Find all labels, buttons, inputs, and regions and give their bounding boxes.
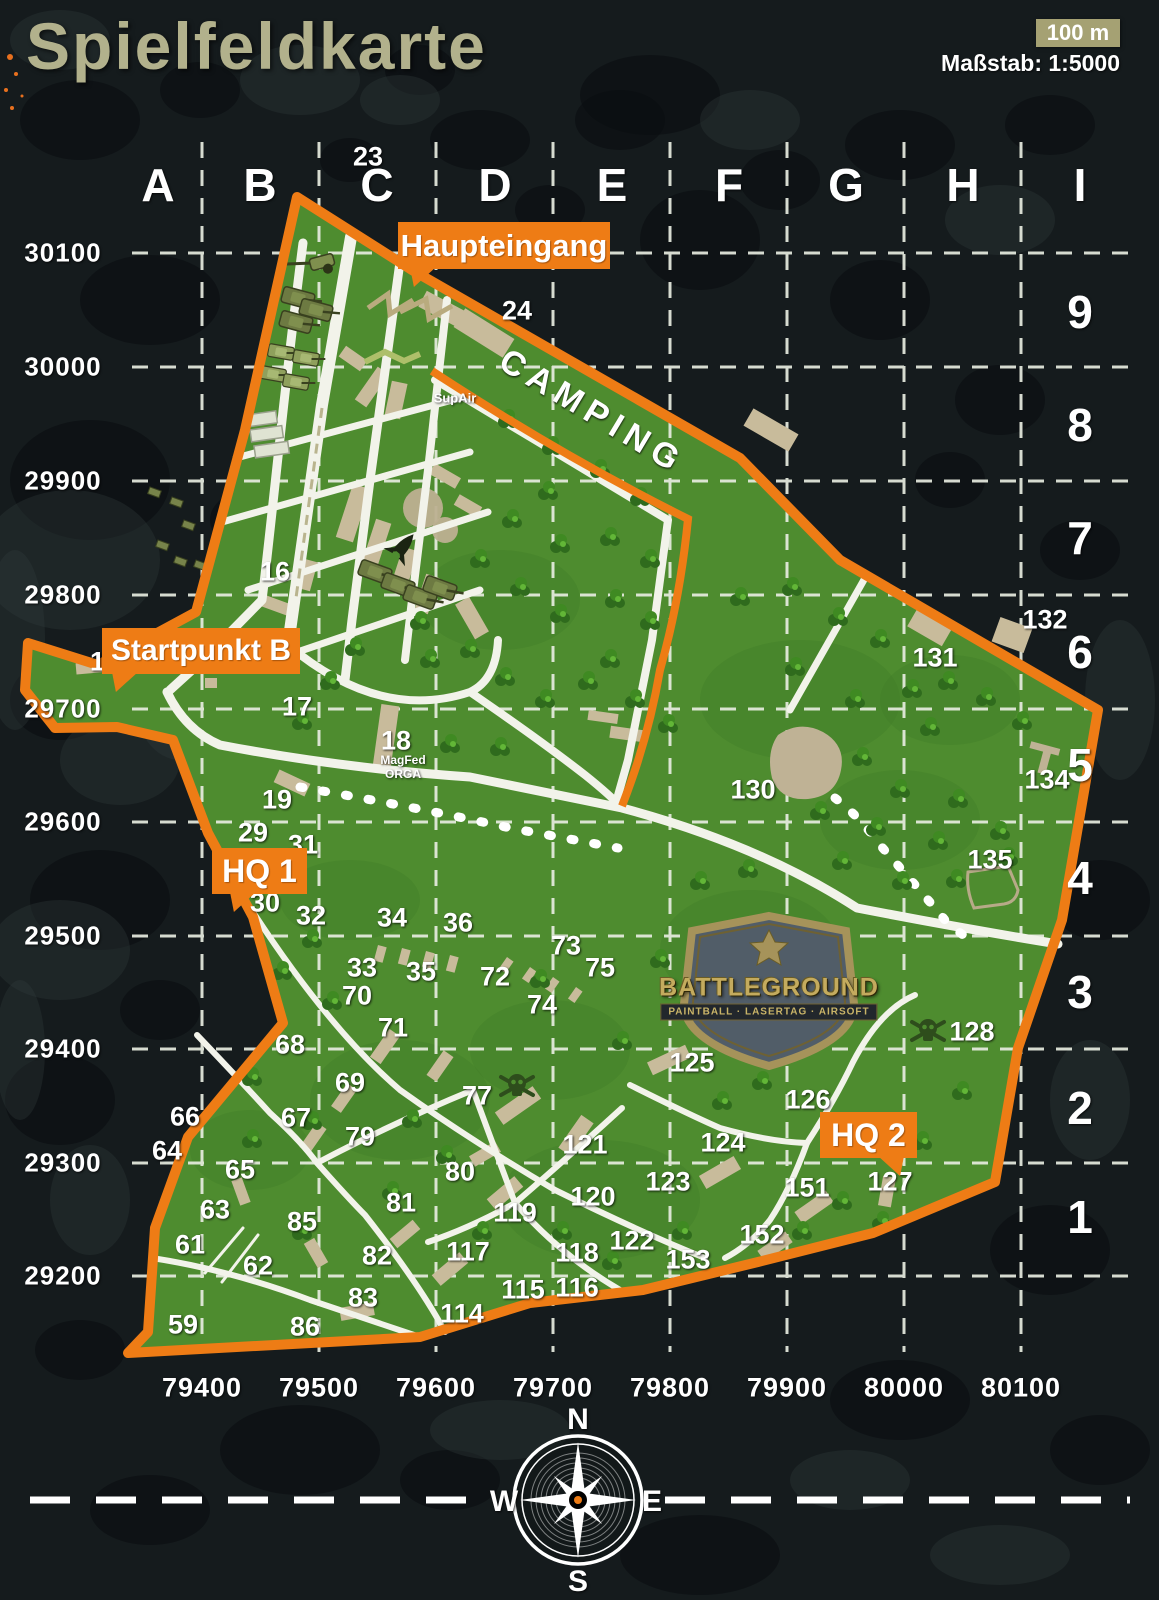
poi-number: 86 [290,1312,320,1343]
poi-number: 33 [347,953,377,984]
grid-row-number: 4 [1067,851,1093,905]
compass-rose-icon [514,1436,642,1564]
poi-number: 122 [609,1226,654,1257]
scale-ratio-text: Maßstab: 1:5000 [930,50,1120,77]
axis-easting-label: 79700 [513,1373,593,1404]
poi-number: 32 [296,901,326,932]
poi-number: 34 [377,903,407,934]
callout-startpunkt-b: Startpunkt B [102,628,300,674]
grid-row-number: 1 [1067,1190,1093,1244]
poi-number: 153 [665,1245,710,1276]
poi-number: 18 [381,726,411,757]
axis-easting-label: 80000 [864,1373,944,1404]
poi-number: 118 [555,1238,599,1269]
grid-row-number: 6 [1067,625,1093,679]
poi-number: 63 [200,1195,230,1226]
poi-number: 66 [170,1102,200,1133]
page-title: Spielfeldkarte [26,8,487,84]
poi-number: 114 [440,1299,484,1330]
poi-number: 119 [493,1198,537,1229]
poi-number: 23 [353,142,383,173]
area-label-supair: SupAir [434,391,477,406]
grid-column-letter: E [597,158,628,212]
compass-west-label: W [490,1485,518,1519]
poi-number: 62 [243,1251,273,1282]
poi-number: 75 [585,953,615,984]
axis-northing-label: 30100 [24,238,101,269]
axis-easting-label: 79600 [396,1373,476,1404]
axis-northing-label: 29300 [24,1148,101,1179]
callout-label: Haupteingang [401,228,608,264]
poi-number: 123 [645,1167,690,1198]
poi-number: 135 [967,845,1012,876]
callout-hq2: HQ 2 [820,1112,917,1158]
poi-number: 151 [784,1173,829,1204]
poi-number: 121 [562,1130,607,1161]
logo-subtitle: PAINTBALL · LASERTAG · AIRSOFT [660,1004,877,1021]
poi-number: 115 [501,1275,545,1306]
poi-number: 82 [362,1241,392,1272]
axis-northing-label: 29500 [24,921,101,952]
poi-number: 35 [406,957,436,988]
poi-number: 128 [949,1017,994,1048]
grid-column-letter: H [946,158,979,212]
grid-column-letter: F [715,158,743,212]
poi-number: 59 [168,1310,198,1341]
axis-easting-label: 80100 [981,1373,1061,1404]
poi-number: 77 [462,1081,492,1112]
poi-number: 116 [555,1273,599,1304]
callout-label: HQ 1 [222,853,297,890]
poi-number: 70 [342,981,372,1012]
grid-row-number: 9 [1067,285,1093,339]
poi-number: 74 [527,990,557,1021]
axis-northing-label: 29600 [24,807,101,838]
poi-number: 29 [238,818,268,849]
poi-number: 79 [345,1122,375,1153]
poi-number: 16 [260,557,290,588]
poi-number: 72 [480,962,510,993]
axis-northing-label: 29400 [24,1034,101,1065]
axis-easting-label: 79400 [162,1373,242,1404]
axis-easting-label: 79500 [279,1373,359,1404]
axis-northing-label: 29800 [24,580,101,611]
poi-number: 130 [730,775,775,806]
poi-number: 85 [287,1207,317,1238]
grid-row-number: 2 [1067,1081,1093,1135]
scale-bar: 100 m [1036,19,1120,47]
spielfeldkarte-map[interactable]: Spielfeldkarte 100 m Maßstab: 1:5000 ABC… [0,0,1159,1600]
axis-northing-label: 29700 [24,694,101,725]
poi-number: 120 [570,1182,615,1213]
area-label-orga: ORGA [385,767,421,781]
poi-number: 67 [281,1103,311,1134]
poi-number: 131 [912,643,957,674]
poi-number: 68 [275,1030,305,1061]
grid-column-letter: D [478,158,511,212]
axis-easting-label: 79800 [630,1373,710,1404]
axis-northing-label: 30000 [24,352,101,383]
poi-number: 132 [1022,605,1067,636]
poi-number: 69 [335,1068,365,1099]
callout-label: Startpunkt B [111,634,291,668]
callout-label: HQ 2 [831,1117,906,1154]
compass-east-label: E [642,1485,662,1519]
compass-north-label: N [567,1403,589,1437]
poi-number: 61 [175,1230,205,1261]
poi-number: 125 [669,1048,714,1079]
poi-number: 117 [446,1237,490,1268]
poi-number: 81 [386,1188,416,1219]
axis-easting-label: 79900 [747,1373,827,1404]
grid-column-letter: I [1074,158,1087,212]
grid-column-letter: B [243,158,276,212]
axis-northing-label: 29900 [24,466,101,497]
poi-number: 17 [282,692,312,723]
poi-number: 134 [1024,765,1069,796]
grid-row-number: 5 [1067,738,1093,792]
poi-number: 80 [445,1157,475,1188]
grid-column-letter: A [141,158,174,212]
grid-column-letter: G [828,158,864,212]
area-label-magfed: MagFed [380,753,425,767]
poi-number: 152 [739,1220,784,1251]
grid-row-number: 8 [1067,398,1093,452]
poi-number: 127 [867,1167,912,1198]
poi-number: 64 [152,1136,182,1167]
poi-number: 24 [502,296,532,327]
callout-hq1: HQ 1 [212,848,307,894]
scale-bar-label: 100 m [1047,20,1109,46]
compass-south-label: S [568,1565,588,1599]
poi-number: 65 [225,1155,255,1186]
poi-number: 19 [262,785,292,816]
poi-number: 36 [443,908,473,939]
grid-row-number: 7 [1067,511,1093,565]
grid-row-number: 3 [1067,965,1093,1019]
poi-number: 73 [551,931,581,962]
axis-northing-label: 29200 [24,1261,101,1292]
callout-haupteingang: Haupteingang [398,222,610,269]
poi-number: 71 [378,1013,408,1044]
logo-name: BATTLEGROUND [659,974,879,1003]
poi-number: 83 [348,1283,378,1314]
poi-number: 126 [785,1085,830,1116]
poi-number: 124 [700,1128,745,1159]
